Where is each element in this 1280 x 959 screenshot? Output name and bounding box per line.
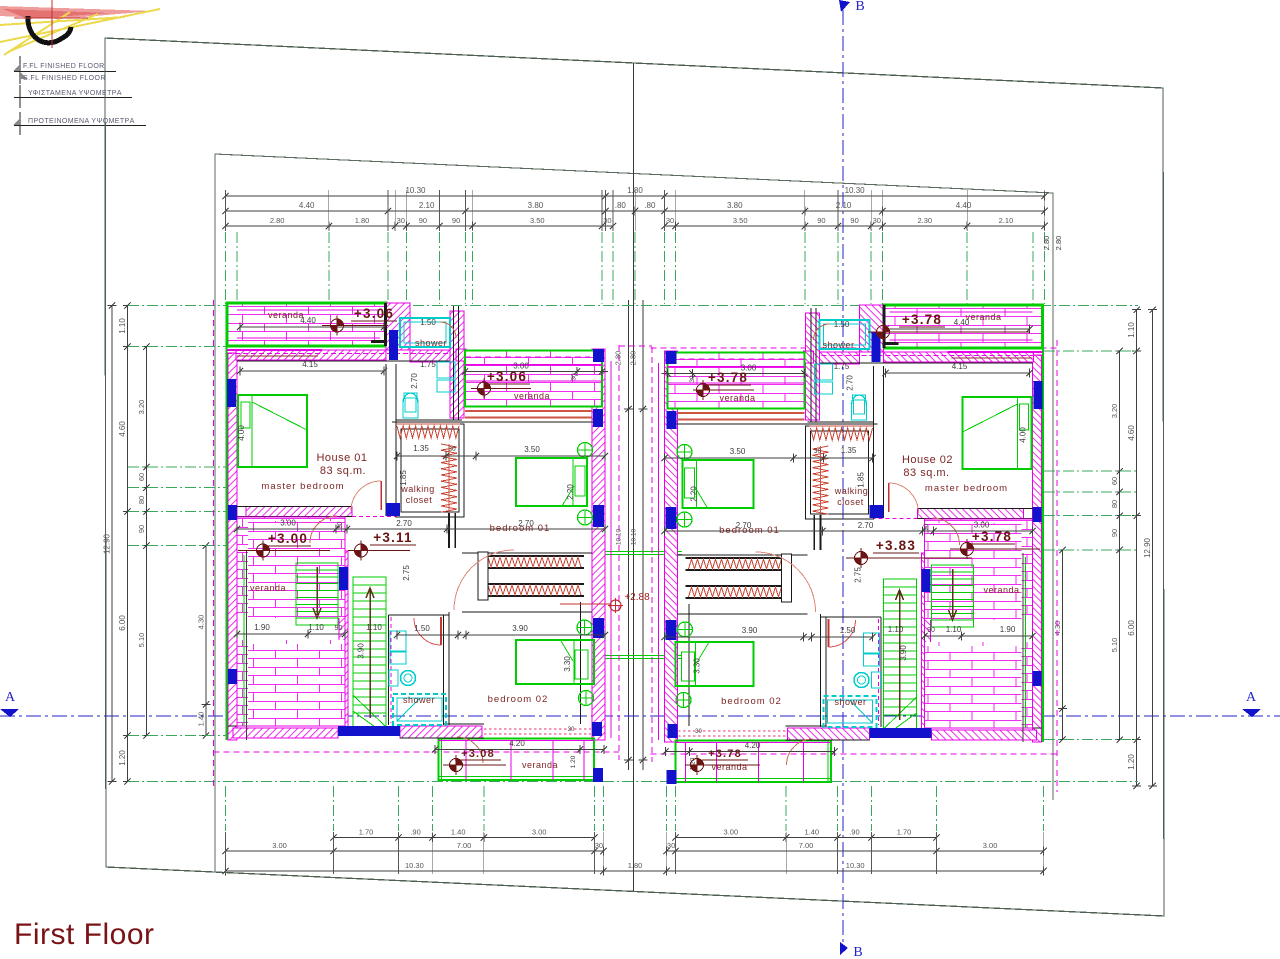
- svg-text:3.90: 3.90: [512, 624, 528, 633]
- svg-text:+2.88: +2.88: [624, 592, 650, 603]
- svg-text:.80: .80: [615, 201, 627, 210]
- svg-text:83 sq.m.: 83 sq.m.: [320, 465, 366, 477]
- svg-text:4.40: 4.40: [299, 201, 315, 210]
- svg-text:bedroom 02: bedroom 02: [721, 696, 782, 707]
- svg-text:2.30: 2.30: [917, 216, 932, 225]
- svg-text:B: B: [853, 945, 862, 959]
- svg-text:1.10: 1.10: [308, 623, 324, 632]
- svg-text:90: 90: [850, 216, 858, 225]
- svg-text:10.30: 10.30: [846, 861, 865, 870]
- svg-text:4.30: 4.30: [197, 615, 206, 630]
- svg-text:80: 80: [137, 496, 146, 504]
- svg-text:4.00: 4.00: [237, 425, 246, 441]
- svg-text:2.10: 2.10: [999, 216, 1014, 225]
- svg-text:master bedroom: master bedroom: [925, 483, 1008, 494]
- svg-text:90: 90: [338, 521, 344, 528]
- svg-text:.90: .90: [410, 828, 420, 837]
- svg-text:10.30: 10.30: [845, 186, 866, 195]
- svg-text:3.80: 3.80: [528, 201, 544, 210]
- svg-text:veranda: veranda: [514, 391, 550, 401]
- svg-text:7.00: 7.00: [457, 841, 472, 850]
- svg-text:1.50: 1.50: [414, 624, 430, 633]
- svg-text:1.80: 1.80: [355, 216, 370, 225]
- svg-text:2.70: 2.70: [736, 521, 752, 530]
- svg-text:S.FL FINISHED FLOOR: S.FL FINISHED FLOOR: [23, 75, 106, 82]
- svg-text:2.70: 2.70: [846, 375, 855, 391]
- svg-text:90: 90: [924, 523, 930, 530]
- svg-text:90: 90: [927, 627, 935, 634]
- svg-text:+3.78: +3.78: [708, 748, 742, 760]
- svg-text:1.10: 1.10: [946, 625, 962, 634]
- svg-text:1.50: 1.50: [840, 626, 856, 635]
- svg-text:4.60: 4.60: [118, 421, 127, 437]
- svg-text:80: 80: [1110, 500, 1119, 508]
- svg-text:+3.00: +3.00: [268, 531, 308, 546]
- svg-text:30: 30: [448, 446, 456, 453]
- svg-text:3.90: 3.90: [742, 626, 758, 635]
- svg-text:1.10: 1.10: [888, 625, 904, 634]
- svg-text:2.80: 2.80: [629, 351, 638, 366]
- svg-text:90: 90: [137, 525, 146, 533]
- svg-text:12.90: 12.90: [103, 533, 112, 554]
- svg-text:30: 30: [667, 841, 675, 850]
- svg-text:90: 90: [1110, 529, 1119, 537]
- svg-text:90: 90: [335, 625, 343, 632]
- svg-text:1.40: 1.40: [451, 828, 466, 837]
- svg-text:3.50: 3.50: [524, 445, 540, 454]
- svg-text:30: 30: [689, 375, 696, 383]
- svg-text:+3.78: +3.78: [902, 312, 942, 327]
- svg-text:1.70: 1.70: [359, 828, 374, 837]
- svg-text:F.FL FINISHED FLOOR: F.FL FINISHED FLOOR: [23, 63, 105, 70]
- svg-text:closet: closet: [406, 495, 433, 505]
- svg-text:ΠPOΤΕΙΝOΜΕΝΑ ΥΨOΜΕΤPΑ: ΠPOΤΕΙΝOΜΕΝΑ ΥΨOΜΕΤPΑ: [28, 118, 135, 125]
- svg-text:1.70: 1.70: [897, 828, 912, 837]
- svg-text:1.10: 1.10: [1127, 322, 1136, 338]
- svg-text:3.50: 3.50: [733, 216, 748, 225]
- svg-text:+3.06: +3.06: [487, 369, 527, 384]
- svg-text:2.20: 2.20: [566, 484, 575, 500]
- svg-text:6.00: 6.00: [118, 615, 127, 631]
- svg-text:30: 30: [873, 216, 881, 225]
- svg-text:83 sq.m.: 83 sq.m.: [903, 467, 949, 479]
- svg-text:1.40: 1.40: [804, 828, 819, 837]
- svg-text:4.60: 4.60: [1127, 425, 1136, 441]
- svg-text:3.90: 3.90: [357, 643, 366, 659]
- svg-text:30: 30: [814, 448, 822, 455]
- svg-text:A: A: [5, 690, 16, 705]
- svg-text:1.20: 1.20: [570, 755, 577, 768]
- svg-text:2.70: 2.70: [396, 519, 412, 528]
- svg-text:30: 30: [397, 216, 405, 225]
- svg-text:veranda: veranda: [983, 585, 1019, 595]
- svg-text:1.50: 1.50: [420, 318, 436, 327]
- svg-text:veranda: veranda: [522, 760, 558, 770]
- svg-text:shower: shower: [415, 338, 447, 348]
- svg-text:30: 30: [603, 216, 611, 225]
- svg-text:3.00: 3.00: [724, 828, 739, 837]
- svg-text:House 02: House 02: [902, 454, 953, 466]
- svg-text:4.00: 4.00: [1019, 427, 1028, 443]
- svg-text:master bedroom: master bedroom: [261, 481, 344, 492]
- svg-text:+3.83: +3.83: [876, 538, 916, 553]
- svg-text:10.30: 10.30: [405, 186, 426, 195]
- svg-text:1.20: 1.20: [1127, 754, 1136, 770]
- svg-text:30: 30: [568, 727, 575, 733]
- svg-text:3.50: 3.50: [730, 447, 746, 456]
- svg-text:1.50: 1.50: [834, 320, 850, 329]
- svg-text:B: B: [855, 0, 864, 14]
- svg-text:4.15: 4.15: [952, 362, 968, 371]
- svg-text:60: 60: [137, 473, 146, 481]
- svg-text:3.00: 3.00: [532, 828, 547, 837]
- svg-text:+3.78: +3.78: [708, 370, 748, 385]
- svg-text:4.20: 4.20: [745, 741, 761, 750]
- svg-text:3.20: 3.20: [1110, 404, 1119, 419]
- svg-text:30: 30: [571, 373, 578, 381]
- svg-text:2.80: 2.80: [1054, 236, 1063, 251]
- svg-text:1.35: 1.35: [841, 446, 857, 455]
- svg-text:First Floor: First Floor: [14, 918, 155, 951]
- svg-text:1.75: 1.75: [834, 362, 850, 371]
- svg-text:veranda: veranda: [250, 583, 286, 593]
- svg-text:+3.08: +3.08: [461, 748, 495, 760]
- svg-text:60: 60: [1110, 477, 1119, 485]
- svg-text:veranda: veranda: [719, 393, 755, 403]
- svg-text:closet: closet: [837, 497, 864, 507]
- svg-text:veranda: veranda: [711, 762, 747, 772]
- svg-text:A: A: [1246, 690, 1257, 705]
- svg-text:+3.06: +3.06: [354, 306, 394, 321]
- svg-text:1.80: 1.80: [628, 861, 643, 870]
- svg-text:2.75: 2.75: [402, 565, 411, 581]
- svg-text:2.75: 2.75: [854, 567, 863, 583]
- svg-text:House 01: House 01: [316, 452, 367, 464]
- svg-text:3.00: 3.00: [272, 841, 287, 850]
- svg-text:4.40: 4.40: [956, 201, 972, 210]
- svg-text:1.75: 1.75: [420, 360, 436, 369]
- svg-text:7.00: 7.00: [799, 841, 814, 850]
- svg-text:2.20: 2.20: [690, 486, 699, 502]
- svg-text:12.90: 12.90: [1143, 537, 1152, 558]
- svg-text:4.30: 4.30: [1053, 621, 1062, 636]
- svg-text:4.40: 4.40: [954, 318, 970, 327]
- svg-text:shower: shower: [834, 697, 866, 707]
- svg-text:2.80: 2.80: [614, 351, 623, 366]
- svg-text:1.40: 1.40: [197, 712, 206, 727]
- svg-text:5.10: 5.10: [137, 633, 146, 648]
- svg-text:10.30: 10.30: [405, 861, 424, 870]
- svg-text:30: 30: [695, 729, 702, 735]
- svg-text:5.10: 5.10: [1110, 638, 1119, 653]
- svg-text:2.70: 2.70: [410, 373, 419, 389]
- svg-text:1.90: 1.90: [1000, 625, 1016, 634]
- svg-text:2.80: 2.80: [1042, 236, 1051, 251]
- svg-text:4.40: 4.40: [300, 316, 316, 325]
- svg-text:shower: shower: [822, 340, 854, 350]
- svg-text:1.35: 1.35: [413, 444, 429, 453]
- svg-text:2.10: 2.10: [419, 201, 435, 210]
- svg-text:1.10: 1.10: [366, 623, 382, 632]
- svg-text:3.30: 3.30: [693, 658, 702, 674]
- svg-text:3.90: 3.90: [899, 645, 908, 661]
- svg-text:shower: shower: [403, 695, 435, 705]
- svg-text:3.20: 3.20: [137, 400, 146, 415]
- svg-text:1.85: 1.85: [857, 472, 866, 488]
- svg-text:1.85: 1.85: [399, 470, 408, 486]
- svg-text:2.70: 2.70: [858, 521, 874, 530]
- svg-text:90: 90: [452, 216, 460, 225]
- svg-text:veranda: veranda: [965, 312, 1001, 322]
- svg-text:1.90: 1.90: [254, 623, 270, 632]
- svg-text:4.15: 4.15: [302, 360, 318, 369]
- svg-text:6.00: 6.00: [1127, 620, 1136, 636]
- svg-text:3.00: 3.00: [983, 841, 998, 850]
- svg-text:+3.78: +3.78: [972, 529, 1012, 544]
- svg-text:90: 90: [419, 216, 427, 225]
- svg-text:3.30: 3.30: [563, 656, 572, 672]
- svg-text:30: 30: [666, 216, 674, 225]
- svg-text:.80: .80: [644, 201, 656, 210]
- svg-text:10.10: 10.10: [616, 528, 623, 545]
- svg-text:3.00: 3.00: [280, 519, 296, 528]
- svg-text:ΥΦΙΣΤΑΜΕΝΑ ΥΨOΜΕΤPΑ: ΥΦΙΣΤΑΜΕΝΑ ΥΨOΜΕΤPΑ: [28, 90, 122, 97]
- svg-text:2.70: 2.70: [518, 519, 534, 528]
- svg-text:+3.11: +3.11: [373, 530, 412, 545]
- svg-text:10.10: 10.10: [631, 528, 638, 545]
- svg-text:1.20: 1.20: [118, 750, 127, 766]
- svg-text:.90: .90: [849, 828, 859, 837]
- svg-text:30: 30: [595, 841, 603, 850]
- svg-text:veranda: veranda: [268, 310, 304, 320]
- svg-text:bedroom 02: bedroom 02: [488, 694, 549, 705]
- svg-text:1.10: 1.10: [118, 318, 127, 334]
- svg-text:90: 90: [817, 216, 825, 225]
- svg-text:3.80: 3.80: [727, 201, 743, 210]
- svg-text:2.80: 2.80: [270, 216, 285, 225]
- svg-text:3.50: 3.50: [530, 216, 545, 225]
- svg-text:4.20: 4.20: [509, 739, 525, 748]
